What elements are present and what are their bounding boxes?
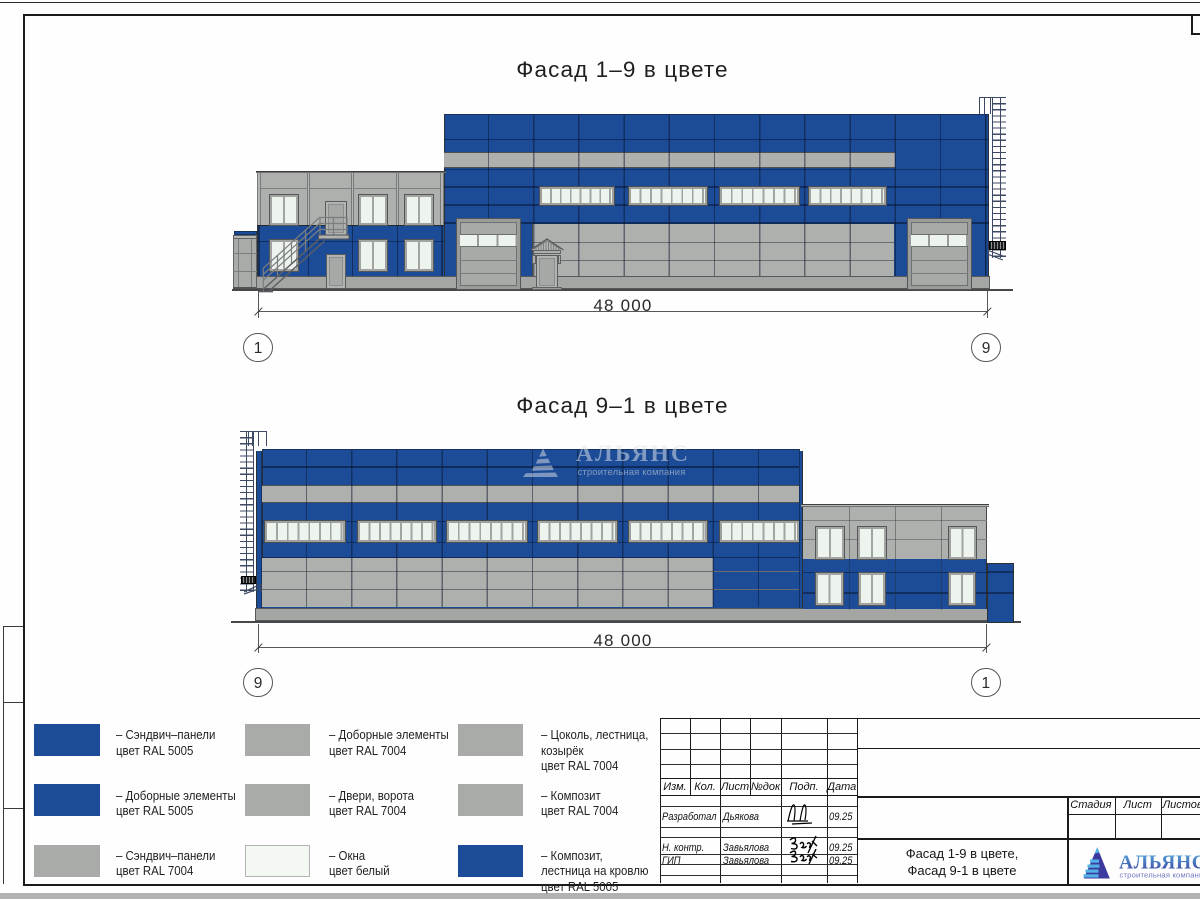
svg-text:строительная компания: строительная компания (1120, 871, 1200, 880)
